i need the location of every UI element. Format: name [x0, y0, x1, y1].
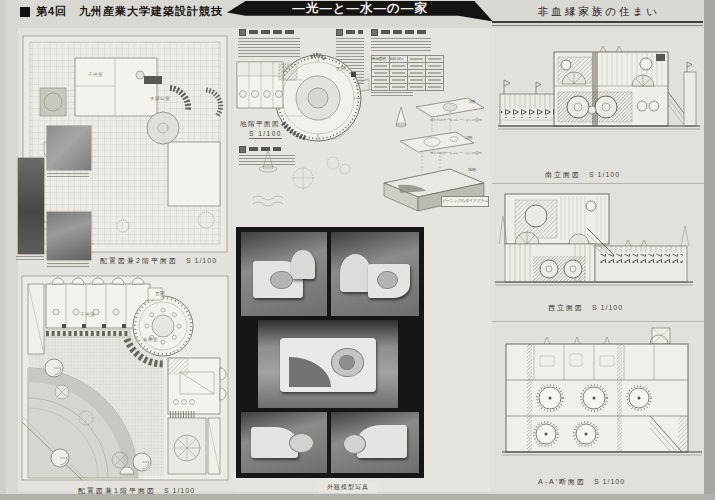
west-elevation-label: 西立面図S 1/100: [548, 303, 623, 313]
header-rule-thin: [492, 25, 703, 26]
axon-annotation: 光と水のサーキュレーションの空間: [430, 152, 488, 156]
south-elevation-label: 南立面図S 1/100: [545, 170, 620, 180]
model-photo: [241, 412, 327, 473]
room-label: 子供室: [80, 312, 95, 317]
room-label: 食事室: [143, 337, 158, 342]
room-label: 玄関: [336, 66, 346, 71]
panel-divider: [492, 183, 704, 184]
west-elevation-drawing: [495, 186, 695, 306]
axon-floor-label: 2階: [469, 99, 475, 104]
axon-annotation: 光と水のサーキュレーションの空間: [430, 119, 488, 123]
axon-floor-label: 1階: [466, 135, 472, 140]
area-table: 敷地面積 600.00㎡: [371, 55, 444, 91]
competition-header: 第4回 九州産業大学建築設計競技: [20, 4, 223, 19]
basement-plan-scale: S 1/100: [249, 130, 282, 139]
competition-title: 第4回 九州産業大学建築設計競技: [36, 4, 223, 19]
model-photo-panel: [236, 227, 424, 478]
photo-caption-bar: [47, 173, 89, 177]
zoning-diagram-caption: ゾーニングのダイアグラム: [441, 196, 489, 207]
lower-plan-scale: S 1/100: [164, 487, 195, 494]
area-table-label: 敷地面積: [372, 56, 390, 63]
upper-plan-scale: S 1/100: [186, 257, 217, 264]
model-photos-caption: 外観模型写真: [319, 482, 377, 493]
header-bullet-square: [20, 7, 30, 17]
photo-caption-bar: [47, 263, 89, 267]
room-label: 玄関: [155, 291, 165, 296]
section-label: A-A′断面図S 1/100: [538, 477, 625, 487]
model-photo: [331, 232, 419, 316]
area-table-value: 600.00㎡: [390, 56, 408, 63]
upper-plan-label: 配置図兼2階平面図S 1/100: [100, 256, 217, 266]
model-photo: [241, 232, 327, 316]
section-drawing: [500, 326, 704, 472]
axonometric-diagram: [370, 95, 488, 227]
model-photo-aerial: [258, 320, 398, 408]
scan-edge-right: [704, 0, 715, 500]
site-photo-tall: [18, 158, 44, 254]
aerial-photo: [47, 126, 91, 170]
room-label: 夫婦寝室: [150, 96, 170, 101]
basement-plan-label: 地階平面図: [240, 120, 280, 129]
header-rule: [492, 21, 703, 23]
south-elevation-drawing: [496, 44, 702, 172]
model-photo: [331, 412, 419, 473]
street-photo: [47, 212, 91, 260]
theme-title: 非血縁家族の住まい: [497, 5, 701, 19]
photo-caption-bar: [16, 256, 44, 260]
room-label: 子供室: [88, 72, 103, 77]
axon-floor-label: 地階: [468, 167, 476, 172]
scan-edge-bottom: [0, 494, 715, 500]
lower-floor-plan-drawing: [20, 272, 232, 484]
panel-divider: [492, 321, 704, 322]
